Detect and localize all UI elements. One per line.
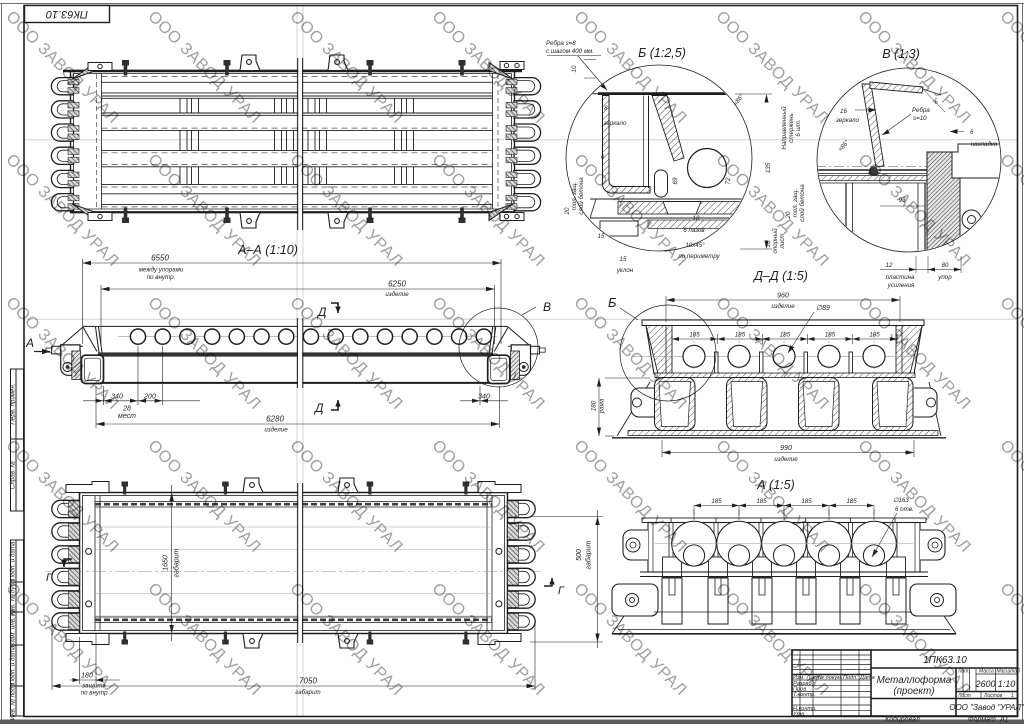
svg-text:Т.контр.: Т.контр. bbox=[793, 692, 816, 698]
svg-text:зеркало: зеркало bbox=[603, 120, 627, 127]
svg-text:Б: Б bbox=[608, 295, 617, 310]
svg-text:Д–Д (1:5): Д–Д (1:5) bbox=[752, 269, 808, 283]
svg-text:габарит: габарит bbox=[173, 548, 181, 577]
svg-text:габарит: габарит bbox=[295, 689, 320, 696]
svg-text:Г: Г bbox=[46, 572, 53, 584]
svg-text:Справ. №: Справ. № bbox=[10, 461, 17, 489]
svg-text:изделие: изделие bbox=[385, 291, 409, 298]
svg-text:Направленный: Направленный bbox=[781, 106, 788, 149]
svg-text:16: 16 bbox=[840, 108, 847, 115]
svg-text:990: 990 bbox=[780, 445, 792, 452]
svg-text:6: 6 bbox=[970, 129, 974, 136]
svg-text:185: 185 bbox=[869, 332, 880, 339]
svg-text:6280: 6280 bbox=[266, 415, 284, 424]
svg-text:18: 18 bbox=[693, 215, 700, 222]
svg-text:6250: 6250 bbox=[388, 280, 406, 289]
svg-text:усиления: усиления bbox=[887, 282, 915, 289]
svg-text:А1: А1 bbox=[999, 717, 1009, 724]
svg-text:Перв. примен.: Перв. примен. bbox=[10, 383, 17, 424]
svg-text:6: 6 bbox=[601, 154, 605, 161]
svg-text:185: 185 bbox=[711, 498, 722, 505]
svg-text:Д: Д bbox=[313, 401, 324, 415]
svg-text:слой бетона: слой бетона bbox=[799, 184, 806, 222]
svg-text:габарит: габарит bbox=[585, 540, 593, 569]
svg-text:Масса: Масса bbox=[979, 669, 994, 675]
svg-text:Г: Г bbox=[558, 585, 565, 597]
svg-text:8: 8 bbox=[604, 105, 608, 112]
svg-text:Ребра: Ребра bbox=[912, 107, 930, 114]
svg-text:Дата: Дата bbox=[859, 675, 875, 681]
svg-text:Подп. и дата: Подп. и дата bbox=[10, 645, 17, 684]
svg-text:2600: 2600 bbox=[974, 679, 995, 689]
svg-text:135: 135 bbox=[765, 162, 772, 173]
svg-text:мест: мест bbox=[118, 413, 136, 420]
svg-text:лист: лист bbox=[779, 233, 786, 249]
svg-text:с шагом 400 мм.: с шагом 400 мм. bbox=[546, 48, 594, 55]
svg-text:6 пазов: 6 пазов bbox=[683, 227, 705, 234]
svg-text:Б (1:2,5): Б (1:2,5) bbox=[638, 46, 686, 60]
svg-text:Копировал: Копировал bbox=[885, 717, 920, 724]
svg-text:рама: рама bbox=[599, 398, 606, 414]
svg-text:185: 185 bbox=[846, 498, 857, 505]
svg-text:1650: 1650 bbox=[163, 555, 170, 571]
svg-text:стержень: стержень bbox=[788, 113, 795, 142]
svg-text:Листов: Листов bbox=[983, 693, 1003, 699]
svg-text:Взам. инв. №: Взам. инв. № bbox=[10, 609, 17, 648]
svg-text:Подп. и дата: Подп. и дата bbox=[10, 541, 17, 580]
svg-text:15: 15 bbox=[620, 256, 627, 263]
svg-text:Формат: Формат bbox=[968, 717, 996, 724]
svg-text:Масштаб: Масштаб bbox=[997, 669, 1021, 675]
svg-text:ПК63.10: ПК63.10 bbox=[45, 8, 88, 20]
svg-text:28: 28 bbox=[122, 406, 131, 413]
svg-text:7050: 7050 bbox=[299, 677, 317, 686]
svg-text:500: 500 bbox=[576, 549, 583, 561]
svg-text:185: 185 bbox=[780, 332, 791, 339]
svg-text:6550: 6550 bbox=[151, 254, 169, 263]
svg-text:1: 1 bbox=[1011, 693, 1014, 699]
svg-text:по внутр.: по внутр. bbox=[147, 274, 176, 281]
svg-text:960: 960 bbox=[777, 293, 789, 300]
svg-text:пластина: пластина bbox=[886, 274, 915, 281]
svg-text:6 шт.: 6 шт. bbox=[795, 119, 802, 136]
svg-text:185: 185 bbox=[801, 498, 812, 505]
svg-text:6 отв.: 6 отв. bbox=[895, 506, 914, 513]
svg-text:Утв.: Утв. bbox=[792, 712, 806, 718]
svg-text:тол. защ.: тол. защ. bbox=[792, 189, 799, 218]
svg-text:185: 185 bbox=[689, 332, 700, 339]
svg-text:10х45°: 10х45° bbox=[685, 242, 705, 249]
svg-text:∅89: ∅89 bbox=[816, 305, 830, 312]
svg-text:В: В bbox=[543, 300, 551, 314]
svg-text:10: 10 bbox=[765, 240, 772, 247]
svg-text:изделие: изделие bbox=[771, 303, 795, 310]
svg-text:340: 340 bbox=[478, 394, 490, 401]
svg-text:накладка: накладка bbox=[971, 141, 998, 148]
svg-text:10: 10 bbox=[571, 65, 578, 72]
svg-text:зеркало: зеркало bbox=[835, 117, 859, 124]
svg-text:69: 69 bbox=[672, 177, 679, 184]
svg-text:80: 80 bbox=[942, 262, 949, 269]
svg-text:тол. защ.: тол. защ. bbox=[571, 182, 578, 211]
svg-text:изделие: изделие bbox=[774, 456, 798, 463]
svg-text:Ребра s=8: Ребра s=8 bbox=[546, 40, 576, 47]
svg-text:А: А bbox=[25, 336, 34, 350]
svg-text:Инв. № подл.: Инв. № подл. bbox=[10, 682, 17, 720]
svg-text:s=10: s=10 bbox=[913, 115, 927, 122]
svg-text:20: 20 bbox=[564, 207, 571, 215]
svg-text:200: 200 bbox=[143, 394, 156, 401]
svg-text:12: 12 bbox=[886, 262, 893, 269]
svg-text:опорный: опорный bbox=[772, 228, 779, 254]
svg-text:15: 15 bbox=[598, 233, 605, 240]
svg-text:180: 180 bbox=[591, 400, 598, 411]
svg-text:слой бетона: слой бетона bbox=[578, 177, 585, 215]
svg-text:(проект): (проект) bbox=[893, 686, 934, 697]
svg-text:1:10: 1:10 bbox=[998, 679, 1016, 689]
svg-text:упор: упор bbox=[937, 274, 952, 281]
svg-text:Подп.: Подп. bbox=[843, 675, 858, 681]
svg-text:уклон: уклон bbox=[616, 267, 634, 274]
svg-text:ООО "Завод "УРАЛ": ООО "Завод "УРАЛ" bbox=[949, 703, 1024, 712]
svg-text:185: 185 bbox=[825, 332, 836, 339]
svg-text:изделие: изделие bbox=[264, 427, 288, 434]
svg-text:между упорами: между упорами bbox=[139, 267, 184, 274]
